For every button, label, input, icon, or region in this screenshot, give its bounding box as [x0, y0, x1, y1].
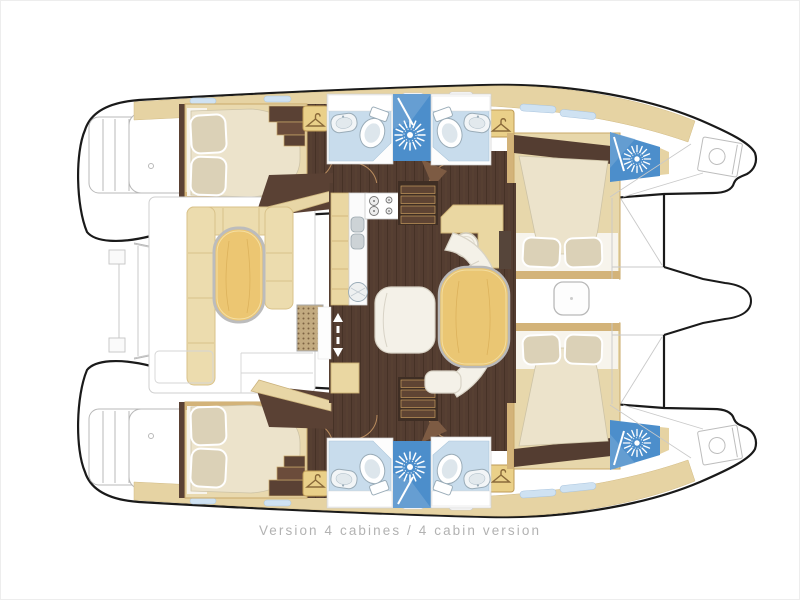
- foredeck-walkway: [513, 279, 619, 323]
- galley-sink: [351, 234, 364, 249]
- bowsprit: [664, 267, 751, 335]
- cockpit-table: [214, 228, 264, 322]
- settee-end-cushion: [425, 371, 461, 393]
- dining-armchair: [375, 287, 435, 353]
- cockpit: [149, 173, 333, 429]
- plan-caption: Version 4 cabines / 4 cabin version: [1, 523, 799, 538]
- floor-plan-svg: [1, 1, 800, 601]
- dining-table: [439, 267, 509, 367]
- stairs-upper-hull: [398, 181, 438, 225]
- crossbeam: [664, 193, 751, 409]
- saloon: [318, 181, 516, 421]
- cooktop: [365, 193, 399, 219]
- galley-sink: [351, 217, 364, 232]
- floor-plan-page: Version 4 cabines / 4 cabin version: [0, 0, 800, 600]
- saloon-cabinet: [331, 363, 359, 393]
- entry-door-opening: [318, 307, 331, 359]
